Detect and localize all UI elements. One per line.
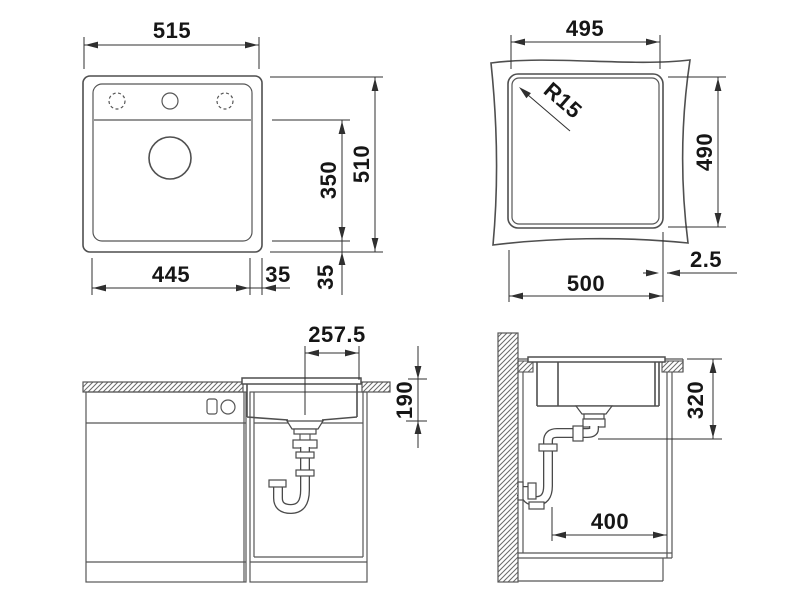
dim-label-2-5: 2.5 [690, 247, 722, 272]
cutout-view: R15 495 490 500 2.5 [491, 16, 737, 302]
trap-outlet-nut [269, 480, 286, 487]
drawing-canvas: 515 510 350 35 445 35 [0, 0, 800, 600]
sink-front-section [242, 378, 361, 420]
dim-rear-clearance: 400 [552, 507, 667, 541]
top-view: 515 510 350 35 445 35 [83, 18, 383, 295]
pipe-union-nut [573, 426, 583, 441]
dim-bowl-inner-depth: 190 [392, 346, 427, 448]
dim-label-445: 445 [152, 262, 190, 287]
control-knob-icon [221, 400, 235, 414]
drain-strainer-front [287, 421, 323, 448]
trap-cleanout-cap [529, 502, 544, 509]
cutout-outer-line [508, 74, 663, 228]
dim-label-190: 190 [392, 381, 417, 419]
dim-label-515: 515 [153, 18, 191, 43]
dim-bowl-depth: 350 [272, 120, 350, 241]
dim-label-257-5: 257.5 [308, 322, 366, 347]
wall-flange [518, 482, 523, 500]
sink-side-section [528, 357, 665, 406]
pipe-union-nut [296, 452, 314, 458]
cabinet-body [86, 392, 246, 582]
sink-outer-rim [83, 76, 262, 252]
tap-hole-right-optional [217, 93, 233, 109]
dim-label-495: 495 [566, 16, 604, 41]
control-panel-icon [207, 399, 217, 414]
dim-outer-width: 500 [509, 232, 663, 302]
dim-overall-width: 515 [84, 18, 259, 69]
technical-drawing-sheet: 515 510 350 35 445 35 [0, 0, 800, 600]
wall-outlet-nut [528, 483, 536, 499]
dim-reveal-gap: 2.5 [643, 247, 737, 276]
wall-section [498, 333, 518, 582]
pipe-union-nut [296, 470, 314, 476]
sink-bowl-outline [93, 84, 252, 241]
corner-radius-callout: R15 [517, 77, 587, 131]
dim-label-320: 320 [683, 381, 708, 419]
drain-hole [149, 137, 191, 179]
worktop-section-left [83, 382, 243, 392]
front-elevation-view: 257.5 190 [83, 322, 427, 582]
dim-depth-with-drain: 320 [598, 359, 722, 439]
bowl-walls [537, 362, 659, 406]
dim-label-490: 490 [692, 133, 717, 171]
pipe-union-nut [539, 444, 557, 451]
dim-label-350: 350 [316, 161, 341, 199]
siphon-trap-side [517, 426, 594, 509]
dim-bowl-width: 445 35 [92, 258, 291, 295]
worktop-panel-outline [491, 60, 690, 245]
dim-cutout-height: 490 [668, 77, 726, 227]
bowl-walls [247, 384, 357, 420]
dim-label-500: 500 [567, 271, 605, 296]
base-cabinet-side [518, 372, 672, 581]
dim-label-510: 510 [349, 145, 374, 183]
side-section-view: 320 400 [498, 333, 722, 582]
tap-hole-center [162, 93, 178, 109]
sink-rim [528, 357, 665, 362]
dim-label-35-horizontal: 35 [265, 262, 290, 287]
drain-strainer-side [576, 406, 612, 427]
dim-label-400: 400 [591, 509, 629, 534]
siphon-trap-front [269, 447, 314, 509]
dishwasher-cabinet [86, 392, 246, 582]
tap-hole-left-optional [109, 93, 125, 109]
dim-label-r15: R15 [539, 77, 587, 123]
dim-rim-bottom: 35 [313, 241, 345, 295]
sink-rim [242, 378, 361, 384]
worktop-section-right [362, 382, 390, 392]
dim-label-35-vertical: 35 [313, 264, 338, 289]
